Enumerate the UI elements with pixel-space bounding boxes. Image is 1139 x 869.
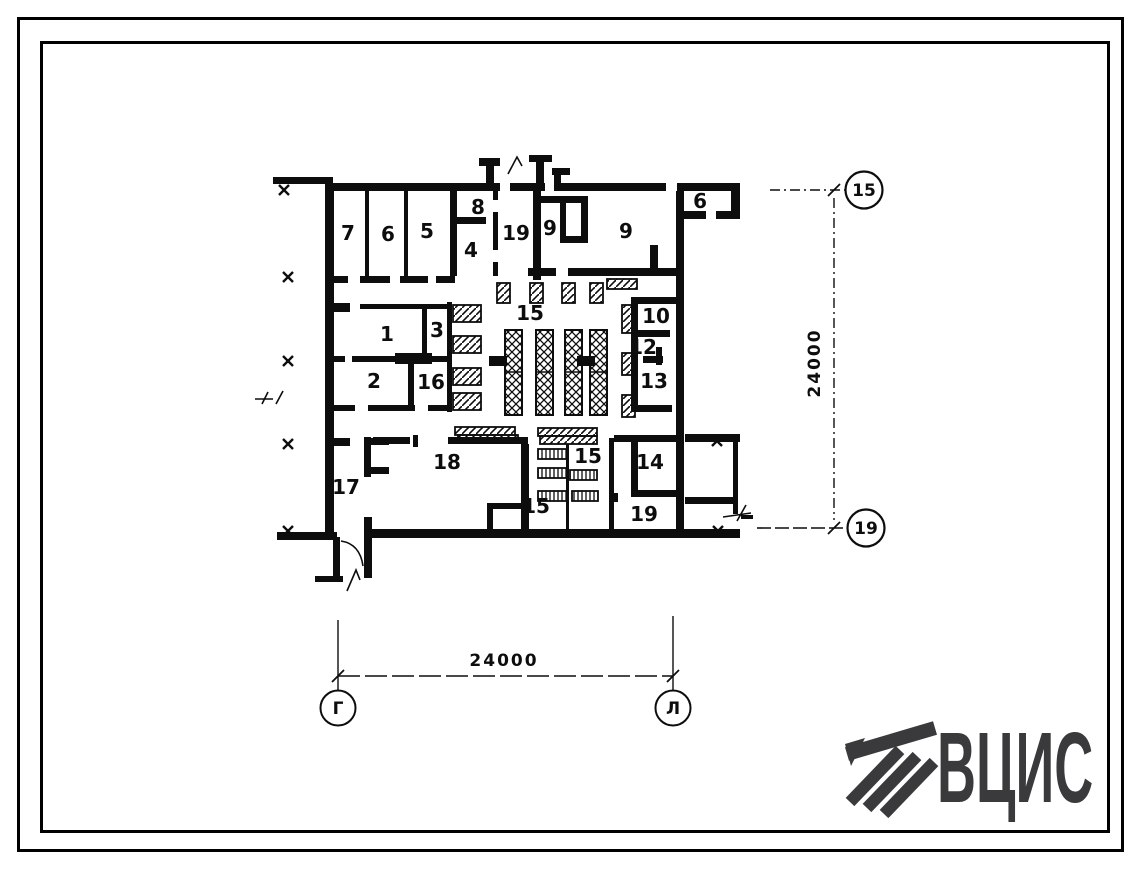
room-label-5: 5	[420, 219, 434, 243]
dimension-right: 24000 15 19	[757, 172, 885, 547]
room-label-1: 1	[380, 322, 394, 346]
room-label-2: 2	[367, 369, 381, 393]
room-label-18: 18	[433, 450, 461, 474]
axis-bubble-19-label: 19	[854, 519, 878, 539]
dimension-value-right: 24000	[805, 328, 825, 397]
room-label-15: 15	[516, 301, 544, 325]
room-label-16: 16	[417, 370, 445, 394]
room-label-9: 9	[619, 219, 633, 243]
logo-emblem-icon	[845, 728, 935, 814]
room-label-15: 15	[522, 494, 550, 518]
dimension-value-bottom: 24000	[469, 651, 538, 671]
room-label-3: 3	[430, 318, 444, 342]
room-label-19: 19	[502, 221, 530, 245]
room-label-13: 13	[640, 369, 668, 393]
room-label-10: 10	[642, 304, 670, 328]
room-label-9: 9	[693, 188, 707, 212]
floor-plan-drawing: 24000 15 19 24000 Г Л 765841999913216151…	[0, 0, 1139, 869]
dimension-bottom: 24000 Г Л	[321, 616, 691, 726]
room-label-19: 19	[630, 502, 658, 526]
room-label-4: 4	[464, 238, 478, 262]
room-label-8: 8	[471, 195, 485, 219]
room-label-15: 15	[574, 444, 602, 468]
axis-bubble-g-label: Г	[333, 699, 344, 719]
room-label-9: 9	[543, 216, 557, 240]
room-label-7: 7	[341, 221, 355, 245]
room-label-12: 12	[629, 335, 657, 359]
room-label-14: 14	[636, 450, 664, 474]
axis-bubble-15-label: 15	[852, 181, 876, 201]
tall-rack-columns	[505, 330, 607, 415]
room-label-17: 17	[332, 475, 360, 499]
axis-bubble-l-label: Л	[666, 699, 680, 719]
room-label-6: 6	[381, 222, 395, 246]
logo-text: ВЦИС	[937, 712, 1093, 824]
logo: ВЦИС	[845, 712, 1093, 824]
